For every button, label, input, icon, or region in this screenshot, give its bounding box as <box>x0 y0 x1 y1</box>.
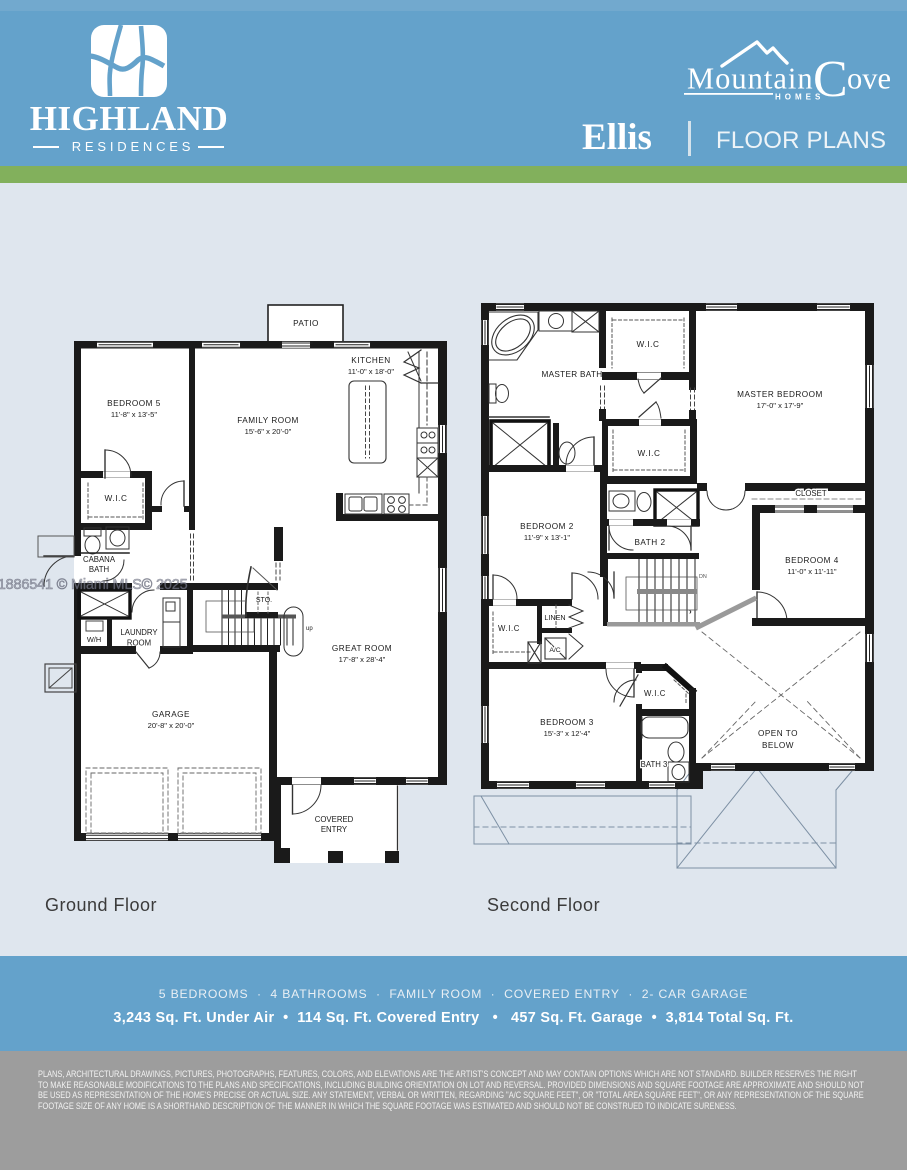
svg-text:BEDROOM 4: BEDROOM 4 <box>785 556 839 565</box>
svg-text:up: up <box>306 626 313 632</box>
svg-text:15'-6" x 20'-0": 15'-6" x 20'-0" <box>245 427 292 436</box>
svg-text:MASTER BEDROOM: MASTER BEDROOM <box>737 390 823 399</box>
svg-text:11'-0" x 18'-0": 11'-0" x 18'-0" <box>348 367 394 376</box>
svg-text:STO.: STO. <box>256 597 272 604</box>
svg-text:W.I.C: W.I.C <box>636 340 659 349</box>
svg-text:W.I.C: W.I.C <box>644 689 666 698</box>
svg-text:W.I.C: W.I.C <box>104 494 127 503</box>
svg-text:GREAT ROOM: GREAT ROOM <box>332 644 392 653</box>
svg-text:›: › <box>689 607 692 616</box>
svg-text:CABANA: CABANA <box>83 555 116 564</box>
svg-text:ROOM: ROOM <box>127 639 151 648</box>
svg-text:DN: DN <box>699 574 707 580</box>
svg-text:ENTRY: ENTRY <box>321 825 348 834</box>
svg-text:BATH: BATH <box>89 565 109 574</box>
svg-text:HOMES: HOMES <box>775 93 824 102</box>
svg-text:BATH 3: BATH 3 <box>641 760 668 769</box>
svg-text:BEDROOM 3: BEDROOM 3 <box>540 718 594 727</box>
svg-text:MASTER BATH: MASTER BATH <box>542 370 603 379</box>
svg-text:BELOW: BELOW <box>762 741 794 750</box>
svg-text:Mountain: Mountain <box>687 62 814 96</box>
svg-text:BEDROOM 5: BEDROOM 5 <box>107 399 161 408</box>
svg-text:ove: ove <box>847 62 891 96</box>
svg-text:11'-9" x 13'-1": 11'-9" x 13'-1" <box>524 533 570 542</box>
svg-text:W/H: W/H <box>87 635 101 644</box>
svg-text:LAUNDRY: LAUNDRY <box>120 628 158 637</box>
svg-text:17'-0" x 17'-9": 17'-0" x 17'-9" <box>757 401 804 410</box>
svg-text:11'-0" x 11'-11": 11'-0" x 11'-11" <box>787 567 837 576</box>
svg-text:CLOSET: CLOSET <box>795 489 826 498</box>
svg-text:COVERED: COVERED <box>315 815 354 824</box>
svg-text:15'-3" x 12'-4": 15'-3" x 12'-4" <box>544 729 591 738</box>
svg-text:OPEN TO: OPEN TO <box>758 729 798 738</box>
svg-text:BATH 2: BATH 2 <box>634 538 665 547</box>
svg-text:20'-8" x 20'-0": 20'-8" x 20'-0" <box>148 721 195 730</box>
svg-text:11'-8" x 13'-5": 11'-8" x 13'-5" <box>111 410 157 419</box>
svg-text:17'-8" x 28'-4": 17'-8" x 28'-4" <box>339 655 386 664</box>
svg-text:GARAGE: GARAGE <box>152 710 190 719</box>
svg-text:KITCHEN: KITCHEN <box>351 356 390 365</box>
svg-text:BEDROOM 2: BEDROOM 2 <box>520 522 574 531</box>
svg-text:LINEN: LINEN <box>544 613 565 622</box>
svg-text:W.I.C: W.I.C <box>637 449 660 458</box>
svg-text:FAMILY ROOM: FAMILY ROOM <box>237 416 299 425</box>
svg-text:A/C: A/C <box>549 647 560 654</box>
svg-text:PATIO: PATIO <box>293 319 319 328</box>
svg-text:W.I.C: W.I.C <box>498 624 520 633</box>
